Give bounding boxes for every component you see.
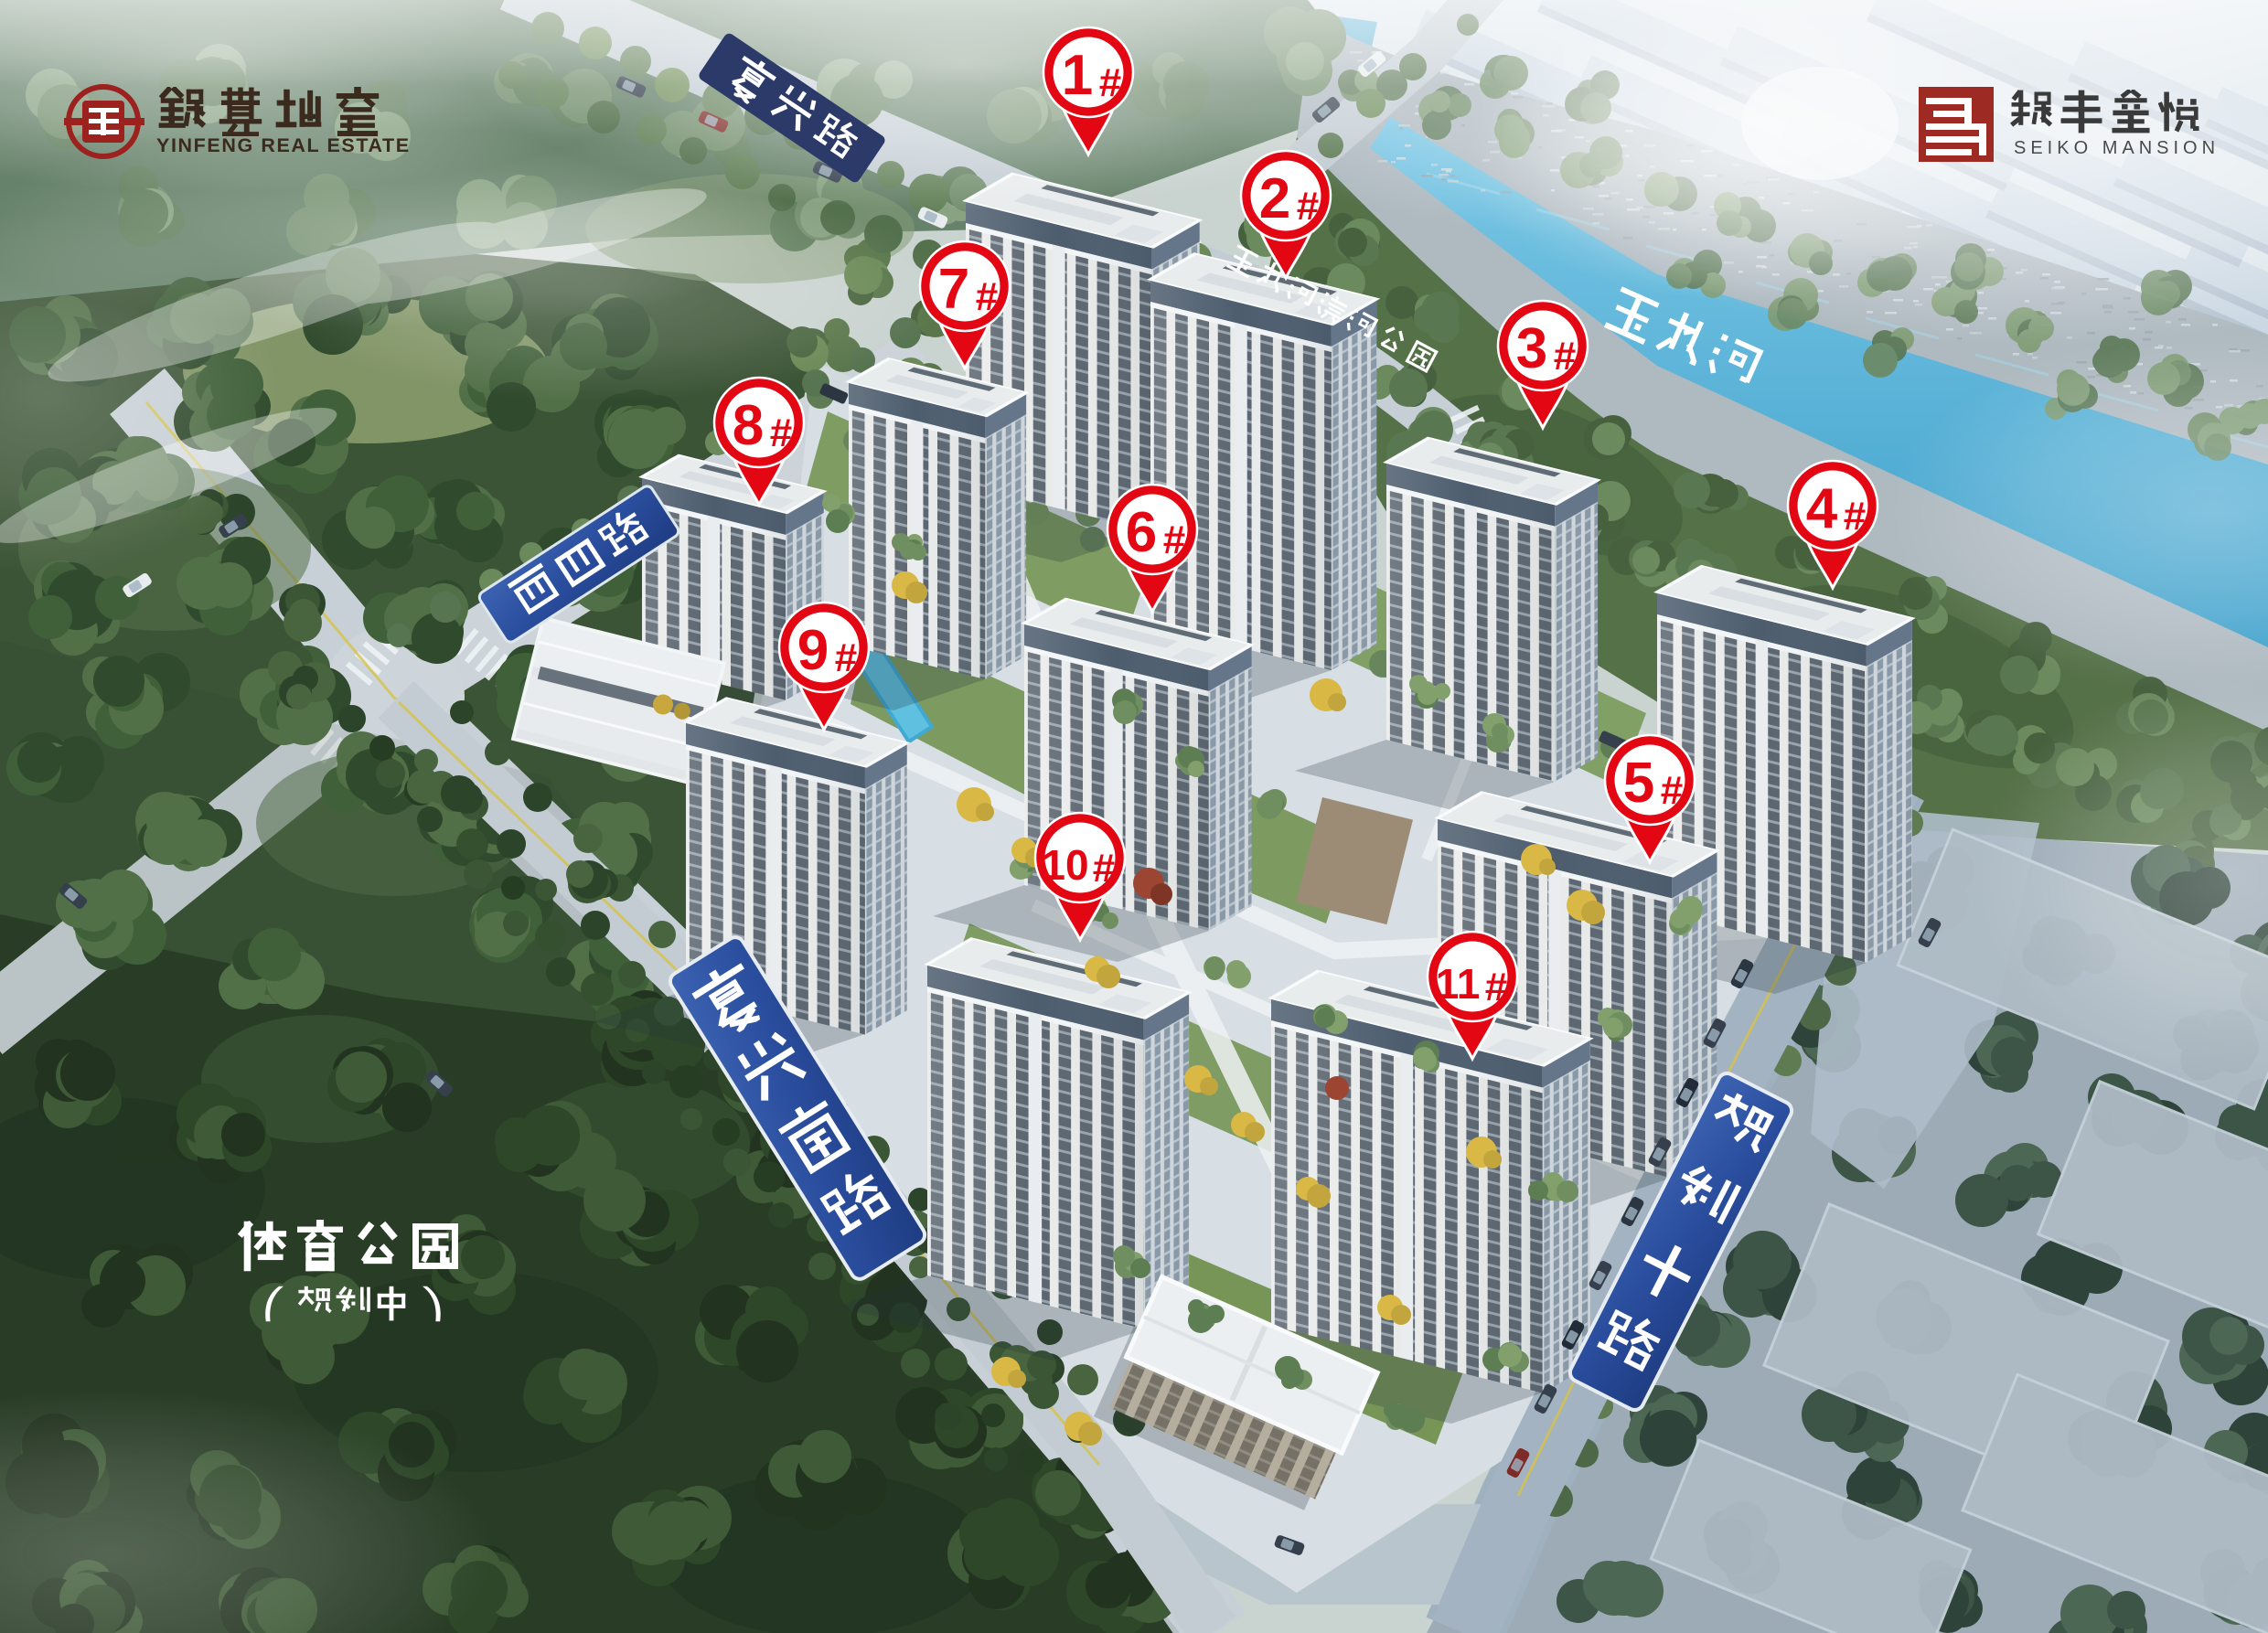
svg-text:#: # bbox=[1163, 518, 1185, 562]
svg-text:6: 6 bbox=[1126, 501, 1157, 564]
svg-text:7: 7 bbox=[938, 258, 969, 321]
svg-text:#: # bbox=[1485, 965, 1507, 1009]
svg-text:8: 8 bbox=[733, 394, 764, 457]
svg-text:4: 4 bbox=[1806, 477, 1838, 540]
svg-text:3: 3 bbox=[1516, 317, 1547, 380]
svg-text:#: # bbox=[1554, 334, 1576, 379]
svg-text:11: 11 bbox=[1436, 960, 1481, 1008]
svg-text:2: 2 bbox=[1259, 167, 1290, 230]
svg-text:#: # bbox=[1297, 184, 1319, 229]
svg-text:SEIKO MANSION: SEIKO MANSION bbox=[2014, 138, 2220, 158]
svg-text:1: 1 bbox=[1062, 44, 1093, 107]
svg-text:#: # bbox=[835, 635, 857, 680]
svg-text:#: # bbox=[770, 411, 792, 455]
svg-text:10: 10 bbox=[1042, 841, 1088, 889]
svg-text:#: # bbox=[1844, 494, 1866, 539]
svg-text:YINFENG REAL ESTATE: YINFENG REAL ESTATE bbox=[156, 134, 411, 156]
svg-text:#: # bbox=[1099, 60, 1121, 105]
svg-text:#: # bbox=[1093, 846, 1115, 891]
svg-text:9: 9 bbox=[797, 619, 829, 682]
svg-text:5: 5 bbox=[1623, 752, 1654, 815]
svg-text:#: # bbox=[976, 274, 998, 319]
svg-text:#: # bbox=[1661, 768, 1683, 813]
